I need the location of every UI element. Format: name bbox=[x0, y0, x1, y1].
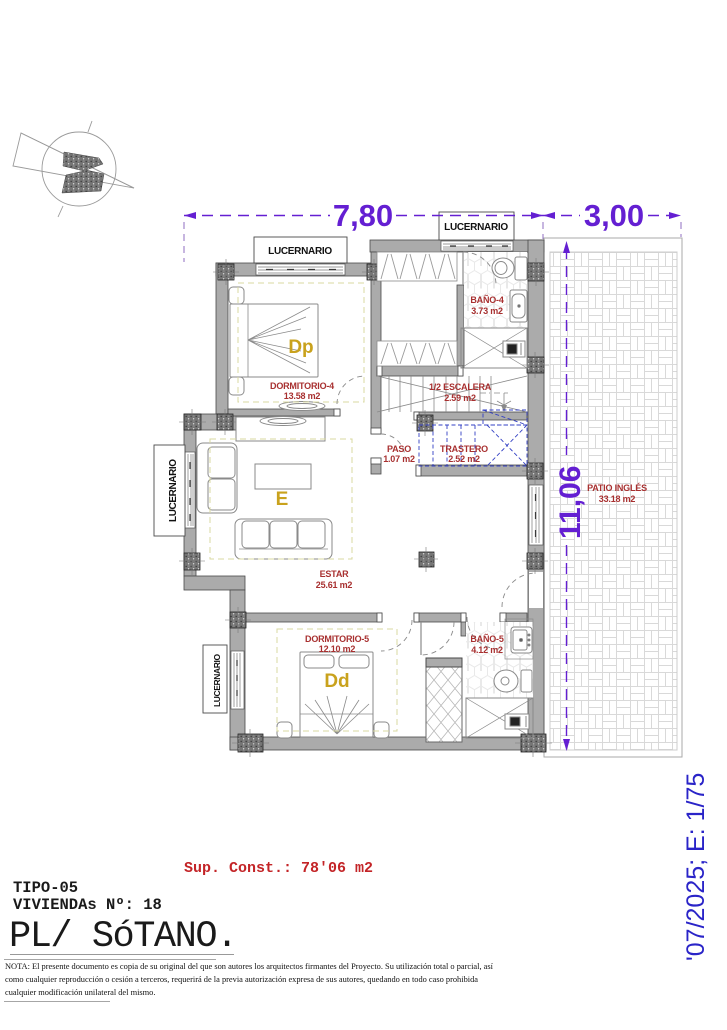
svg-text:BAÑO-4: BAÑO-4 bbox=[470, 295, 503, 305]
svg-text:LUCERNARIO: LUCERNARIO bbox=[444, 222, 508, 233]
svg-text:ESTAR: ESTAR bbox=[320, 569, 350, 579]
svg-text:'07/2025; E: 1/75: '07/2025; E: 1/75 bbox=[682, 773, 710, 961]
svg-text:PASO: PASO bbox=[387, 444, 411, 454]
svg-text:1.07 m2: 1.07 m2 bbox=[383, 454, 415, 464]
svg-text:4.12 m2: 4.12 m2 bbox=[471, 645, 503, 655]
svg-text:E: E bbox=[276, 489, 289, 510]
svg-text:DORMITORIO-5: DORMITORIO-5 bbox=[305, 634, 369, 644]
svg-text:NOTA: El presente documento es: NOTA: El presente documento es copia de … bbox=[5, 962, 494, 971]
svg-text:DORMITORIO-4: DORMITORIO-4 bbox=[270, 381, 334, 391]
svg-text:Sup. Const.: 78'06 m2: Sup. Const.: 78'06 m2 bbox=[184, 860, 373, 877]
svg-text:2.59 m2: 2.59 m2 bbox=[444, 393, 476, 403]
svg-text:TIPO-05: TIPO-05 bbox=[13, 879, 78, 897]
svg-text:3.73 m2: 3.73 m2 bbox=[471, 306, 503, 316]
svg-text:cualquier modificación unilate: cualquier modificación unilateral del mi… bbox=[5, 988, 155, 997]
svg-text:TRASTERO: TRASTERO bbox=[440, 444, 488, 454]
svg-text:25.61 m2: 25.61 m2 bbox=[316, 580, 353, 590]
svg-text:Dp: Dp bbox=[288, 337, 313, 358]
svg-text:3,00: 3,00 bbox=[584, 198, 644, 233]
svg-text:LUCERNARIO: LUCERNARIO bbox=[268, 246, 332, 257]
svg-text:LUCERNARIO: LUCERNARIO bbox=[168, 459, 179, 522]
svg-text:LUCERNARIO: LUCERNARIO bbox=[212, 654, 222, 707]
svg-text:Dd: Dd bbox=[324, 671, 349, 692]
svg-text:7,80: 7,80 bbox=[333, 198, 393, 233]
svg-text:2.52 m2: 2.52 m2 bbox=[448, 454, 480, 464]
svg-text:PATIO INGLÉS: PATIO INGLÉS bbox=[587, 483, 647, 493]
svg-text:VIVIENDAs Nº: 18: VIVIENDAs Nº: 18 bbox=[13, 896, 162, 914]
svg-text:33.18 m2: 33.18 m2 bbox=[599, 494, 636, 504]
svg-text:12.10 m2: 12.10 m2 bbox=[319, 644, 356, 654]
svg-text:11,06: 11,06 bbox=[554, 466, 587, 539]
svg-text:como cualquier reproducción o: como cualquier reproducción o cesión a t… bbox=[5, 975, 478, 984]
svg-text:13.58 m2: 13.58 m2 bbox=[284, 391, 321, 401]
svg-text:1/2 ESCALERA: 1/2 ESCALERA bbox=[429, 382, 492, 392]
svg-text:PL/ SóTANO.: PL/ SóTANO. bbox=[9, 916, 237, 958]
svg-text:BAÑO-5: BAÑO-5 bbox=[470, 634, 503, 644]
